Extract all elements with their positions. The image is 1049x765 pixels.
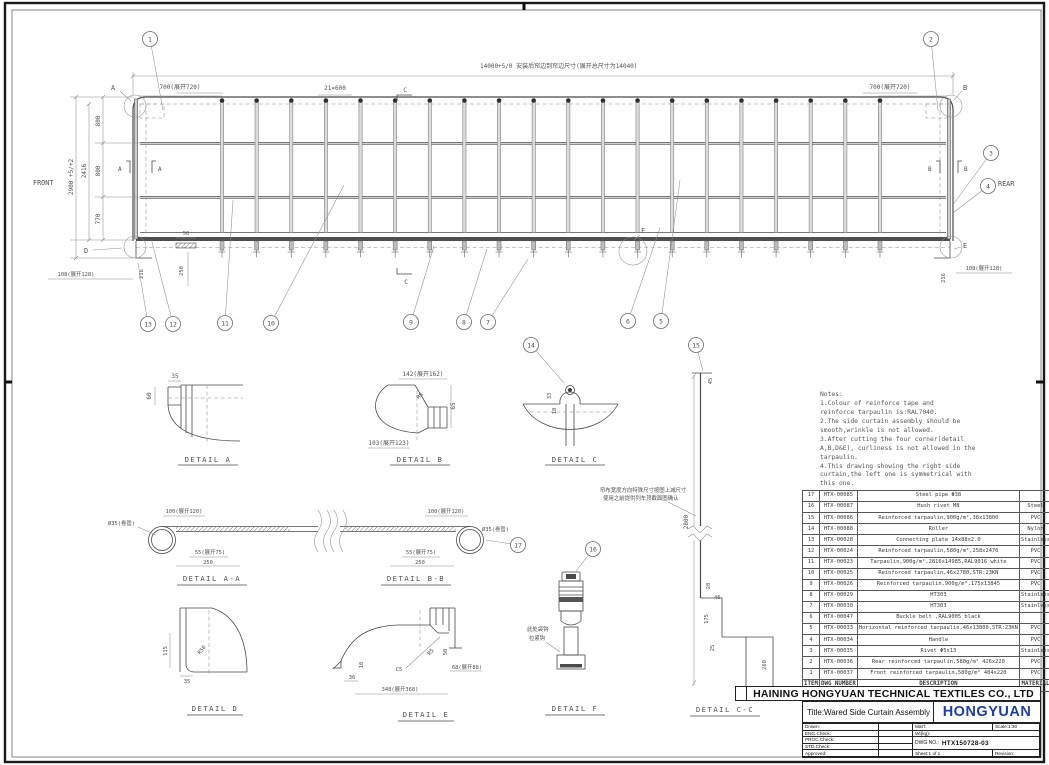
balloon-1: 1 [143, 32, 164, 111]
balloon-17: 17 [486, 538, 526, 553]
detail-d-dim-35: 35 [184, 679, 191, 685]
detail-aa-dim-250: 250 [203, 560, 213, 566]
front-edge-post [135, 99, 138, 239]
detail-cc-dim-260: 260 [762, 660, 768, 670]
section-c-mark-bottom: C [404, 279, 408, 286]
detail-cc-dim-45: 45 [708, 378, 714, 385]
detail-b-view: R5 142(展开162) 65 103(展开123) DETAIL B [368, 371, 457, 465]
bom-cell: PVC [1019, 579, 1049, 590]
bom-cell: HTX-00028 [819, 535, 857, 546]
detail-e-dim-10: 10 [359, 662, 365, 669]
detail-f-view: 此处袋钩 拉紧钩 DETAIL F [527, 572, 605, 715]
balloon-number: 14 [527, 341, 535, 349]
proc-check-value [879, 737, 913, 744]
rear-edge-post [947, 99, 950, 239]
bom-row: 8HTX-00029HT303Stainless0.48022 [803, 590, 1049, 601]
bom-cell: 13 [803, 535, 820, 546]
balloon-7: 7 [481, 259, 529, 330]
bom-row: 5HTX-00033Horizontal reinforced tarpauli… [803, 624, 1049, 635]
detail-aa-label: DETAIL A-A [183, 574, 241, 583]
dim-216-right: 216 [941, 273, 947, 283]
bom-row: 3HTX-00035Rivet Φ5x13Stainless0.0108 [803, 646, 1049, 657]
bom-cell: 10 [803, 568, 820, 579]
engineering-drawing-sheet: 14000+5/0 安装后帘边到帘边尺寸(展开总尺寸为14040) 700(展开… [0, 0, 1049, 765]
bom-cell: HTX-00087 [819, 502, 857, 513]
wt-label: Wt(kg): [913, 731, 1040, 738]
bill-of-materials: 17HTX-00085Steel pipe Φ38216HTX-00087Hus… [802, 490, 1049, 692]
title-block-grid: Drawn: Mat'l: Scale:1:30 ENG.Check: Wt(k… [802, 723, 1041, 758]
detail-e-view: 36 10 C5 R5 50 68(展开88) 348(展开368) DETAI… [333, 608, 482, 721]
bom-cell: HTX-00026 [819, 579, 857, 590]
bom-cell: 5 [803, 624, 820, 635]
balloon-11: 11 [218, 200, 234, 331]
sheet-value: Sheet:1 of 1 [913, 750, 993, 757]
bom-row: 9HTX-00026Reinforced tarpaulin,900g/m²,1… [803, 579, 1049, 590]
dim-108-left: 108(展开128) [58, 271, 95, 278]
section-b-mark-right: B [964, 166, 968, 173]
detail-f-note-line2: 拉紧钩 [529, 634, 545, 642]
bom-row: 1HTX-00037Front reinforced tarpaulin,580… [803, 668, 1049, 679]
bom-cell: HTX-00036 [819, 657, 857, 668]
bom-cell: HTX-00034 [819, 635, 857, 646]
detail-e-dim-36: 36 [349, 675, 356, 681]
dim-700-right: 700(展开720) [870, 84, 911, 91]
bom-cell: Reinforced tarpaulin,46x2780,STR:23KN [857, 568, 1019, 579]
bom-cell: 7 [803, 601, 820, 612]
detail-e-dim-68: 68(展开88) [452, 664, 482, 671]
corner-a-label: A [111, 84, 115, 92]
detail-bb-label: DETAIL B-B [387, 574, 445, 583]
balloon-3: 3 [952, 146, 999, 207]
balloon-number: 1 [148, 35, 152, 43]
approved-label: Approved: [803, 750, 879, 757]
balloon-number: 5 [659, 317, 663, 325]
bom-row: 14HTX-00088RollerNylon0.28022 [803, 524, 1049, 535]
balloon-number: 8 [462, 318, 466, 326]
bom-row: 13HTX-00028Connecting plate 14x88x2.0Sta… [803, 535, 1049, 546]
detail-f-label: DETAIL F [552, 704, 599, 713]
matl-label: Mat'l: [913, 724, 993, 731]
bom-row: 10HTX-00025Reinforced tarpaulin,46x2780,… [803, 568, 1049, 579]
bom-cell: 3 [803, 646, 820, 657]
detail-aa-dim-35: Ø35(卷管) [108, 519, 135, 527]
scale-value: Scale:1:30 [993, 724, 1040, 731]
detail-b-dim-65: 65 [450, 402, 457, 410]
bom-cell: HT303 [857, 601, 1019, 612]
bom-cell: HTX-00033 [819, 624, 857, 635]
section-c-mark-top: C [403, 87, 407, 94]
bom-cell: HTX-00037 [819, 668, 857, 679]
bom-cell: HTX-00024 [819, 546, 857, 557]
balloon-number: 7 [486, 318, 490, 326]
detail-e-r5: R5 [427, 648, 436, 657]
bom-cell: Buckle belt ,RAL9005 black [857, 613, 1019, 624]
detail-bb-dim-35: Ø35(卷管) [482, 525, 509, 533]
bom-cell: Rear reinforced tarpaulin,580g/m² 426x22… [857, 657, 1019, 668]
bom-cell: 11 [803, 557, 820, 568]
bom-cell: 17 [803, 491, 820, 502]
detail-c-label: DETAIL C [552, 455, 599, 464]
dim-bay-spacing: 21×600 [324, 85, 346, 92]
detail-cc-dim-20: 20 [706, 583, 712, 590]
detail-c-dim-18: 18 [552, 408, 558, 415]
detail-c-dim-33: 33 [547, 393, 553, 400]
bom-row: 2HTX-00036Rear reinforced tarpaulin,580g… [803, 657, 1049, 668]
bom-cell: HTX-00085 [819, 491, 857, 502]
dim-2416: 2416 [81, 163, 88, 178]
detail-d-label: DETAIL D [192, 704, 239, 713]
detail-b-dim-103: 103(展开123) [369, 440, 410, 447]
detail-e-label: DETAIL E [403, 710, 450, 719]
bom-cell: PVC [1019, 568, 1049, 579]
drawing-title: Title:Wared Side Curtain Assembly [803, 702, 933, 722]
detail-cc-dim-175: 175 [704, 614, 710, 624]
balloon-5: 5 [654, 180, 681, 329]
bom-cell: 9 [803, 579, 820, 590]
bom-cell: PVC [1019, 668, 1049, 679]
bom-cell: 15 [803, 513, 820, 524]
bom-cell: PVC [1019, 657, 1049, 668]
bom-cell: Stainless [1019, 590, 1049, 601]
bom-row: 7HTX-00030HT303Stainless0.02022 [803, 601, 1049, 612]
bom-cell: 1 [803, 668, 820, 679]
detail-a-label: DETAIL A [185, 455, 232, 464]
bom-cell: HT303 [857, 590, 1019, 601]
detail-e-c5: C5 [396, 667, 403, 673]
balloon-number: 6 [626, 317, 630, 325]
detail-bb-dim-250: 250 [415, 560, 425, 566]
dwg-no-value: HTX150728-03 [942, 740, 989, 747]
bom-cell: Roller [857, 524, 1019, 535]
detail-aa-view: 100(展开120) Ø35(卷管) 55(展开75) 250 DETAIL A… [108, 508, 331, 585]
detail-aa-dim-55: 55(展开75) [195, 549, 225, 556]
detail-d-view: 115 35 R50 DETAIL D [163, 608, 247, 715]
drawn-value [879, 724, 913, 731]
bom-cell: PVC [1019, 635, 1049, 646]
detail-a-dim-60: 60 [146, 392, 153, 400]
detail-d-dim-115: 115 [163, 646, 169, 656]
detail-cc-note-line2: 使用之前提供列车顶截面图确认 [603, 494, 679, 502]
drawn-label: Drawn: [803, 724, 879, 731]
dim-770: 770 [95, 213, 102, 224]
detail-cc-note-line1: 帘布宽度方向特殊尺寸按图上减尺寸 [600, 486, 687, 494]
bom-row: 15HTX-00086Reinforced tarpaulin,900g/m²,… [803, 513, 1049, 524]
bom-cell: Connecting plate 14x88x2.0 [857, 535, 1019, 546]
detail-cc-label: DETAIL C-C [696, 705, 754, 714]
dim-108-right: 108(展开128) [966, 265, 1003, 272]
bom-cell: 14 [803, 524, 820, 535]
balloon-6: 6 [621, 228, 661, 329]
bom-cell: PVC [1019, 513, 1049, 524]
bom-cell: HTX-00086 [819, 513, 857, 524]
banner-stub [736, 687, 747, 700]
balloon-number: 16 [589, 545, 597, 553]
balloon-14: 14 [524, 338, 565, 384]
balloon-number: 4 [986, 182, 990, 190]
balloon-10: 10 [264, 185, 345, 331]
bom-cell: HTX-00035 [819, 646, 857, 657]
bottom-pipe-pocket [136, 237, 950, 241]
bom-cell: HTX-00029 [819, 590, 857, 601]
bom-cell: PVC [1019, 624, 1049, 635]
bom-cell: 2 [803, 657, 820, 668]
company-banner: HAINING HONGYUAN TECHNICAL TEXTILES CO.,… [735, 686, 1041, 701]
bom-cell: HTX-00030 [819, 601, 857, 612]
bom-row: 11HTX-00023Tarpaulin,900g/m²,2816x14985,… [803, 557, 1049, 568]
bom-cell: Reinforced tarpaulin,900g/m²,175x13845 [857, 579, 1019, 590]
bom-cell [1019, 491, 1049, 502]
bom-row: 16HTX-00087Hush rivet M8Steel0.01044 [803, 502, 1049, 513]
bom-cell: Steel [1019, 502, 1049, 513]
detail-cc-view: 45 2800 20 46 175 25 260 帘布宽度方向特殊尺寸按图上减尺… [600, 373, 773, 716]
detail-cc-dim-2800: 2800 [683, 514, 690, 529]
detail-e-dim-348: 348(展开368) [382, 686, 419, 693]
detail-f-note-line1: 此处袋钩 [527, 625, 549, 633]
front-label: FRONT [33, 179, 53, 187]
balloon-number: 10 [267, 319, 275, 327]
bom-row: 12HTX-00024Reinforced tarpaulin,580g/m²,… [803, 546, 1049, 557]
eng-check-value [879, 731, 913, 738]
dim-overall-width: 14000+5/0 安装后帘边到帘边尺寸(展开总尺寸为14040) [480, 62, 637, 70]
bom-cell: Nylon [1019, 524, 1049, 535]
detail-a-view: 35 60 DETAIL A [146, 373, 243, 465]
bom-cell: HTX-00047 [819, 613, 857, 624]
detail-f-mark: F [641, 227, 645, 235]
detail-b-label: DETAIL B [397, 455, 444, 464]
detail-aa-dim-100: 100(展开120) [166, 508, 203, 515]
balloon-number: 9 [409, 318, 413, 326]
bom-cell: 16 [803, 502, 820, 513]
balloon-number: 12 [169, 320, 177, 328]
section-a-mark-right: A [158, 166, 162, 173]
bom-cell: Stainless [1019, 535, 1049, 546]
bom-cell: HTX-00025 [819, 568, 857, 579]
bom-row: 6HTX-00047Buckle belt ,RAL9005 black0.05… [803, 613, 1049, 624]
detail-d-r50: R50 [197, 645, 208, 656]
bom-row: 4HTX-00034HandlePVC0.2802 [803, 635, 1049, 646]
handle-plate [176, 243, 196, 248]
bom-cell [1019, 613, 1049, 624]
detail-bb-dim-55: 55(展开75) [406, 549, 436, 556]
corner-e-label: E [963, 242, 967, 250]
bom-cell: 8 [803, 590, 820, 601]
dwg-no-label: DWG NO.: [915, 740, 939, 746]
eng-check-label: ENG.Check: [803, 731, 879, 738]
bom-cell: Steel pipe Φ38 [857, 491, 1019, 502]
balloon-9: 9 [404, 246, 435, 330]
std-check-label: STD.Check: [803, 744, 879, 751]
balloon-number: 3 [989, 149, 993, 157]
detail-f-circle [619, 237, 647, 265]
detail-c-rivet [568, 388, 572, 392]
title-row: Title:Wared Side Curtain Assembly HONGYU… [802, 701, 1041, 723]
detail-b-circle [940, 95, 962, 117]
bom-cell: Handle [857, 635, 1019, 646]
bom-cell: Hush rivet M8 [857, 502, 1019, 513]
bom-cell: PVC [1019, 557, 1049, 568]
approved-value [879, 750, 913, 757]
balloon-12: 12 [152, 242, 181, 332]
detail-bb-view: 100(展开120) Ø35(卷管) 55(展开75) 250 DETAIL B… [331, 508, 510, 585]
detail-cc-dim-46: 46 [714, 595, 721, 601]
dwg-no-cell: DWG NO.: HTX150728-03 [913, 737, 1040, 750]
balloon-number: 17 [514, 541, 522, 549]
balloon-number: 15 [692, 341, 700, 349]
detail-e-circle [940, 236, 962, 258]
detail-e-dim-50: 50 [443, 649, 449, 656]
bom-cell: Horizontal reinforced tarpaulin,46x13800… [857, 624, 1019, 635]
bom-cell: 6 [803, 613, 820, 624]
dim-250: 250 [179, 266, 185, 276]
bom-cell: HTX-00088 [819, 524, 857, 535]
dim-700-left: 700(展开720) [160, 84, 201, 91]
corner-d-label: D [84, 247, 88, 255]
company-name: HAINING HONGYUAN TECHNICAL TEXTILES CO.,… [747, 688, 1040, 700]
bom-cell: Reinforced tarpaulin,580g/m²,258x2476 [857, 546, 1019, 557]
bom-cell: 12 [803, 546, 820, 557]
hongyuan-logo: HONGYUAN [933, 702, 1040, 722]
balloon-number: 13 [144, 320, 152, 328]
rear-label: REAR [998, 180, 1015, 188]
corner-b-label: B [963, 84, 967, 92]
detail-c-view: 33 18 DETAIL C [523, 386, 618, 466]
revision-label: Revision: [993, 750, 1040, 757]
detail-bb-dim-100: 100(展开120) [428, 508, 465, 515]
bom-cell: 4 [803, 635, 820, 646]
main-assembly-view [124, 95, 962, 265]
bom-cell: Stainless [1019, 601, 1049, 612]
bom-cell: Rivet Φ5x13 [857, 646, 1019, 657]
detail-a-dim-35: 35 [171, 373, 179, 380]
drawing-notes: Notes: 1.Colour of reinforce tape and re… [820, 391, 1025, 489]
dim-50: 50 [183, 231, 190, 237]
dim-2900: 2900 +5/+2 [68, 159, 75, 196]
balloon-2: 2 [924, 32, 939, 112]
proc-check-label: PROC.Check: [803, 737, 879, 744]
std-check-value [879, 744, 913, 751]
detail-b-dim-142: 142(展开162) [403, 371, 444, 378]
dim-800-middle: 800 [95, 165, 102, 176]
bom-row: 17HTX-00085Steel pipe Φ382 [803, 491, 1049, 502]
balloon-number: 11 [221, 319, 229, 327]
section-b-mark-left: B [928, 166, 932, 173]
dim-800-upper: 800 [95, 115, 102, 126]
bom-cell: HTX-00023 [819, 557, 857, 568]
balloon-15: 15 [689, 338, 704, 372]
bom-cell: PVC [1019, 546, 1049, 557]
balloon-number: 2 [929, 35, 933, 43]
detail-cc-dim-25: 25 [710, 645, 716, 652]
bom-cell: Reinforced tarpaulin,900g/m²,38x13800 [857, 513, 1019, 524]
section-a-mark-left: A [118, 166, 122, 173]
main-view-dimensions: 14000+5/0 安装后帘边到帘边尺寸(展开总尺寸为14040) 700(展开… [33, 62, 1015, 286]
balloon-16: 16 [576, 542, 601, 572]
bom-cell: Stainless [1019, 646, 1049, 657]
bom-cell: Tarpaulin,900g/m²,2816x14985,RAL9016 whi… [857, 557, 1019, 568]
bom-cell: Front reinforced tarpaulin,580g/m² 404x2… [857, 668, 1019, 679]
